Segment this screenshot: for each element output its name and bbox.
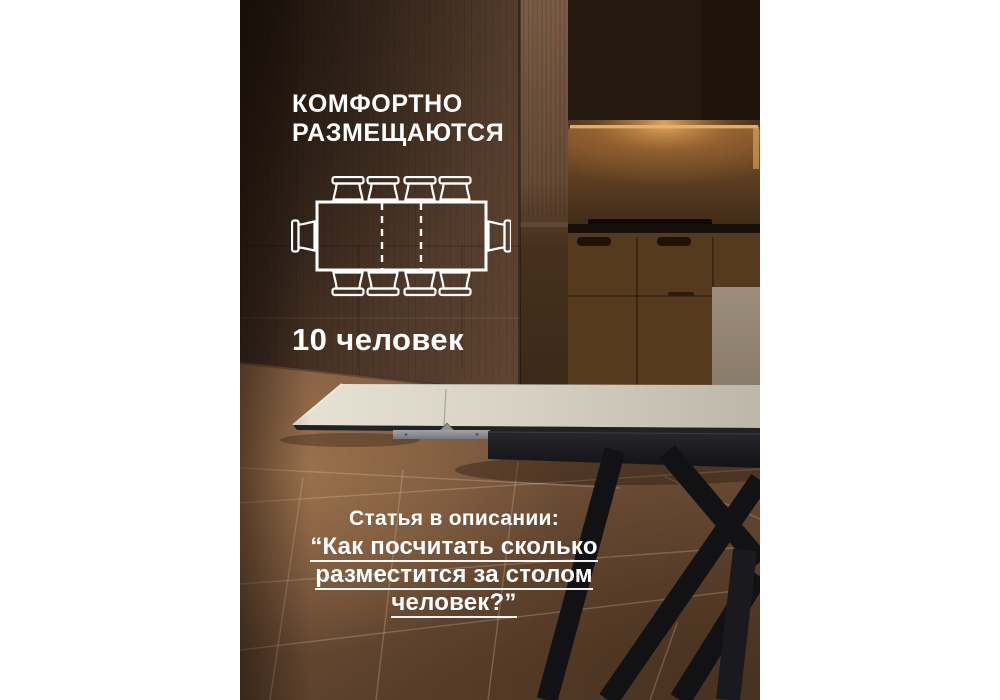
article-note-quote-line2: разместится за столом xyxy=(315,563,592,590)
capacity-label: 10 человек xyxy=(292,322,464,358)
article-note-intro: Статья в описании: xyxy=(240,505,668,532)
kitchen-scene: КОМФОРТНО РАЗМЕЩАЮТСЯ xyxy=(240,0,760,700)
article-note-quote-line3: человек?” xyxy=(391,591,516,618)
headline-line1: КОМФОРТНО xyxy=(292,90,504,119)
table-seating-top-view-icon xyxy=(291,176,511,300)
headline-line2: РАЗМЕЩАЮТСЯ xyxy=(292,119,504,148)
article-note: Статья в описании: “Как посчитать скольк… xyxy=(240,505,668,619)
product-image-canvas: КОМФОРТНО РАЗМЕЩАЮТСЯ xyxy=(0,0,1000,700)
headline: КОМФОРТНО РАЗМЕЩАЮТСЯ xyxy=(292,90,504,148)
article-note-quote-line1: “Как посчитать сколько xyxy=(310,535,597,562)
